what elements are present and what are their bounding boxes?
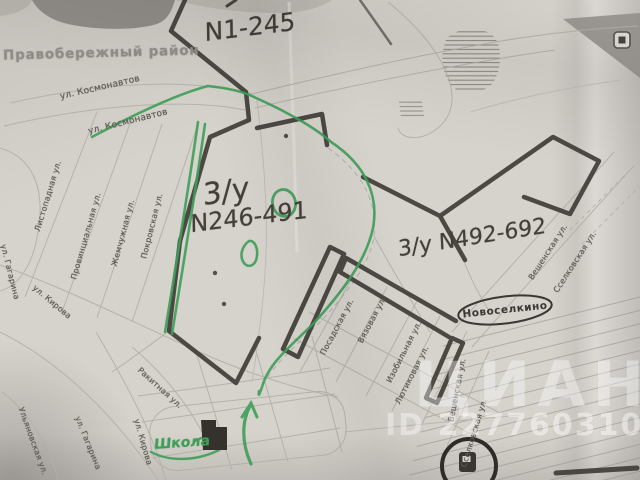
hatched-pond [442,29,500,93]
map-drawing-layer [0,0,640,480]
landmark-icon [614,32,630,48]
shaded-area [32,0,175,29]
map-dots [213,134,288,306]
map-photo: Правобережный район ул. Космонавтовул. К… [0,0,640,480]
shaded-area [0,0,32,16]
hatched-pond [399,101,424,118]
route-marker-green [92,86,374,464]
school-building-icon [201,420,227,450]
green-loop-mark [242,241,258,266]
shaded-area [175,0,332,13]
